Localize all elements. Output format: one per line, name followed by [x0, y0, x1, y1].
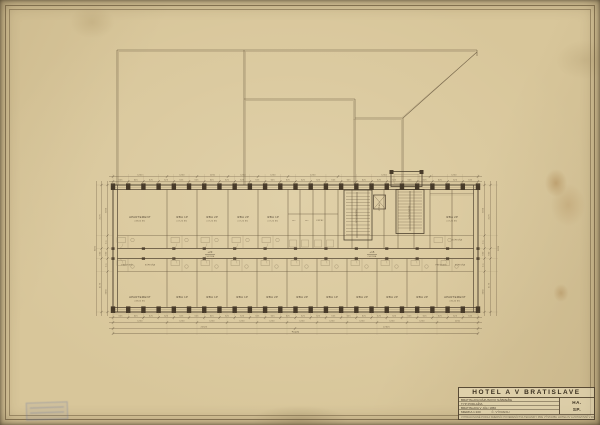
- svg-text:IZBA 1P: IZBA 1P: [176, 295, 188, 299]
- svg-text:4175: 4175: [100, 213, 102, 219]
- svg-text:625: 625: [256, 316, 261, 318]
- svg-text:IZBA 1P: IZBA 1P: [176, 215, 188, 219]
- svg-text:625: 625: [225, 316, 230, 318]
- svg-text:CHODBA: CHODBA: [368, 255, 377, 258]
- svg-text:625: 625: [453, 180, 458, 182]
- svg-text:625: 625: [210, 316, 215, 318]
- title-block-footer-note: VYPRACOVANÉ PODĽA SMERNÍC POVERENÍCTVA T…: [459, 415, 594, 420]
- svg-text:625: 625: [468, 316, 473, 318]
- svg-text:1250: 1250: [269, 321, 275, 323]
- svg-text:IZBA 2P: IZBA 2P: [446, 215, 458, 219]
- svg-text:IZBA 2P: IZBA 2P: [296, 295, 308, 299]
- svg-text:1250: 1250: [209, 321, 215, 323]
- drawing-number-label: Č. VÝKRESU: [492, 410, 510, 414]
- svg-text:625: 625: [468, 180, 473, 182]
- svg-text:1250: 1250: [359, 321, 365, 323]
- svg-text:(17,20 M²): (17,20 M²): [447, 220, 458, 223]
- title-block: HOTEL A V BRATISLAVE BRATISLAVA RÁZUSOVO…: [458, 387, 595, 420]
- svg-text:625: 625: [149, 180, 154, 182]
- svg-text:850: 850: [483, 239, 485, 244]
- svg-text:625: 625: [134, 316, 139, 318]
- svg-text:3050: 3050: [483, 207, 485, 213]
- corridor-level-markers: +23CHODBA+15CHODBA: [205, 250, 377, 258]
- svg-text:625: 625: [119, 180, 124, 182]
- svg-text:4175: 4175: [489, 213, 491, 219]
- svg-text:(38,60 M²): (38,60 M²): [135, 220, 146, 223]
- svg-text:22625: 22625: [383, 327, 390, 329]
- title-block-scale: MIERKA 1:100 Č. VÝKRESU: [459, 410, 559, 414]
- svg-text:625: 625: [164, 180, 169, 182]
- svg-text:625: 625: [179, 316, 184, 318]
- svg-text:625: 625: [347, 180, 352, 182]
- svg-text:1250: 1250: [329, 321, 335, 323]
- svg-text:1250: 1250: [270, 175, 276, 177]
- svg-text:625: 625: [119, 316, 124, 318]
- svg-text:9000: 9000: [497, 246, 499, 252]
- svg-text:1250: 1250: [451, 175, 457, 177]
- svg-text:(38,60 M²): (38,60 M²): [135, 300, 146, 303]
- svg-text:625: 625: [301, 316, 306, 318]
- svg-text:1250: 1250: [381, 175, 387, 177]
- svg-text:625: 625: [362, 180, 367, 182]
- svg-text:APARTEMENT: APARTEMENT: [129, 295, 151, 299]
- svg-text:1250: 1250: [210, 175, 216, 177]
- svg-text:IZBA 2P: IZBA 2P: [237, 215, 249, 219]
- svg-text:625: 625: [240, 316, 245, 318]
- svg-text:3050: 3050: [106, 207, 108, 213]
- svg-text:850: 850: [106, 239, 108, 244]
- stamp-line: [30, 406, 64, 408]
- svg-text:(17,20 M²): (17,20 M²): [268, 220, 279, 223]
- svg-text:850: 850: [106, 262, 108, 267]
- svg-text:IZBA 2P: IZBA 2P: [206, 215, 218, 219]
- svg-text:625: 625: [164, 316, 169, 318]
- svg-text:4175: 4175: [489, 282, 491, 288]
- svg-text:CHODBA: CHODBA: [206, 255, 215, 258]
- svg-text:IZBA 2P: IZBA 2P: [266, 295, 278, 299]
- svg-text:(17,20 M²): (17,20 M²): [238, 220, 249, 223]
- svg-text:625: 625: [332, 180, 337, 182]
- title-block-rows: BRATISLAVA RÁZUSOVO NÁBREŽIE TYP PODLAŽI…: [459, 398, 594, 415]
- svg-text:KÚPEĽŇA: KÚPEĽŇA: [455, 264, 466, 267]
- svg-text:SCHODIŠTE: SCHODIŠTE: [408, 205, 411, 219]
- svg-text:625: 625: [286, 180, 291, 182]
- svg-text:(17,20 M²): (17,20 M²): [207, 220, 218, 223]
- svg-text:625: 625: [225, 180, 230, 182]
- svg-text:3050: 3050: [106, 288, 108, 294]
- svg-text:625: 625: [377, 180, 382, 182]
- svg-text:1250: 1250: [455, 321, 461, 323]
- drawing-sheet: APARTEMENT(38,60 M²)IZBA 1P(17,20 M²)IZB…: [0, 0, 600, 425]
- svg-text:1250: 1250: [310, 175, 316, 177]
- svg-text:625: 625: [271, 180, 276, 182]
- svg-text:9000: 9000: [95, 245, 97, 251]
- svg-text:625: 625: [301, 180, 306, 182]
- svg-text:625: 625: [256, 180, 261, 182]
- svg-text:22625: 22625: [201, 327, 208, 329]
- svg-text:KÚPEĽŇA: KÚPEĽŇA: [452, 239, 463, 242]
- svg-text:625: 625: [392, 180, 397, 182]
- svg-text:IZBA 2P: IZBA 2P: [386, 295, 398, 299]
- sheet-code-line2: SP.: [560, 406, 594, 413]
- scale-label: MIERKA 1:100: [461, 410, 481, 414]
- svg-text:650: 650: [483, 251, 485, 256]
- svg-text:1250: 1250: [137, 321, 143, 323]
- svg-text:4175: 4175: [100, 282, 102, 288]
- sheet-code: HA. SP.: [559, 398, 594, 414]
- svg-text:1250: 1250: [179, 175, 185, 177]
- svg-text:625: 625: [316, 180, 321, 182]
- archive-stamp: [26, 401, 69, 420]
- svg-text:625: 625: [408, 180, 413, 182]
- svg-text:(36,40 M²): (36,40 M²): [450, 300, 461, 303]
- svg-text:APARTEMENT: APARTEMENT: [444, 295, 466, 299]
- roof-outline: [117, 50, 477, 185]
- svg-text:WC: WC: [292, 220, 296, 222]
- svg-text:625: 625: [392, 316, 397, 318]
- svg-text:APARTEMENT: APARTEMENT: [129, 215, 151, 219]
- svg-text:IZBA 1P: IZBA 1P: [326, 295, 338, 299]
- svg-text:625: 625: [271, 316, 276, 318]
- svg-text:IZBA 2P: IZBA 2P: [416, 295, 428, 299]
- svg-text:625: 625: [408, 316, 413, 318]
- svg-text:IZBA 1P: IZBA 1P: [267, 215, 279, 219]
- svg-text:625: 625: [134, 180, 139, 182]
- svg-text:3050: 3050: [483, 288, 485, 294]
- svg-text:IZBA 1P: IZBA 1P: [236, 295, 248, 299]
- svg-text:1250: 1250: [299, 321, 305, 323]
- svg-text:IZBA 2P: IZBA 2P: [356, 295, 368, 299]
- svg-text:625: 625: [362, 316, 367, 318]
- svg-text:625: 625: [332, 316, 337, 318]
- svg-text:625: 625: [210, 180, 215, 182]
- svg-text:+23: +23: [208, 250, 213, 254]
- door-arcs: [118, 244, 447, 264]
- svg-text:PREDSIEŇ: PREDSIEŇ: [121, 264, 133, 267]
- svg-text:1250: 1250: [389, 321, 395, 323]
- svg-text:650: 650: [106, 251, 108, 256]
- svg-text:625: 625: [438, 316, 443, 318]
- svg-text:650: 650: [489, 251, 491, 256]
- svg-text:KÚPEĽŇA: KÚPEĽŇA: [145, 264, 156, 267]
- svg-text:+15: +15: [370, 250, 375, 254]
- svg-text:IZBA 1P: IZBA 1P: [206, 295, 218, 299]
- svg-text:625: 625: [377, 316, 382, 318]
- svg-text:625: 625: [453, 316, 458, 318]
- svg-text:SCHODIŠTE: SCHODIŠTE: [355, 209, 358, 223]
- svg-text:1250: 1250: [240, 175, 246, 177]
- svg-text:850: 850: [483, 262, 485, 267]
- stamp-line: [30, 411, 64, 413]
- svg-text:45250: 45250: [292, 332, 300, 334]
- svg-text:VÝŤAH: VÝŤAH: [378, 203, 381, 211]
- sheet-code-line1: HA.: [560, 399, 594, 406]
- svg-text:625: 625: [149, 316, 154, 318]
- svg-text:625: 625: [195, 180, 200, 182]
- svg-text:PREDSIEŇ: PREDSIEŇ: [435, 264, 447, 267]
- svg-text:625: 625: [179, 180, 184, 182]
- svg-text:625: 625: [423, 316, 428, 318]
- svg-text:625: 625: [286, 316, 291, 318]
- svg-text:1250: 1250: [239, 321, 245, 323]
- svg-text:KÚPEĽ: KÚPEĽ: [316, 219, 323, 222]
- svg-text:625: 625: [438, 180, 443, 182]
- svg-text:1250: 1250: [137, 175, 143, 177]
- floor-plan-svg: APARTEMENT(38,60 M²)IZBA 1P(17,20 M²)IZB…: [0, 0, 600, 425]
- svg-text:650: 650: [100, 251, 102, 256]
- svg-text:1250: 1250: [179, 321, 185, 323]
- svg-text:WC: WC: [305, 220, 309, 222]
- svg-text:625: 625: [423, 180, 428, 182]
- svg-text:625: 625: [240, 180, 245, 182]
- svg-text:1250: 1250: [419, 321, 425, 323]
- svg-text:(17,20 M²): (17,20 M²): [177, 220, 188, 223]
- drawing-title: HOTEL A V BRATISLAVE: [459, 388, 594, 398]
- svg-text:625: 625: [347, 316, 352, 318]
